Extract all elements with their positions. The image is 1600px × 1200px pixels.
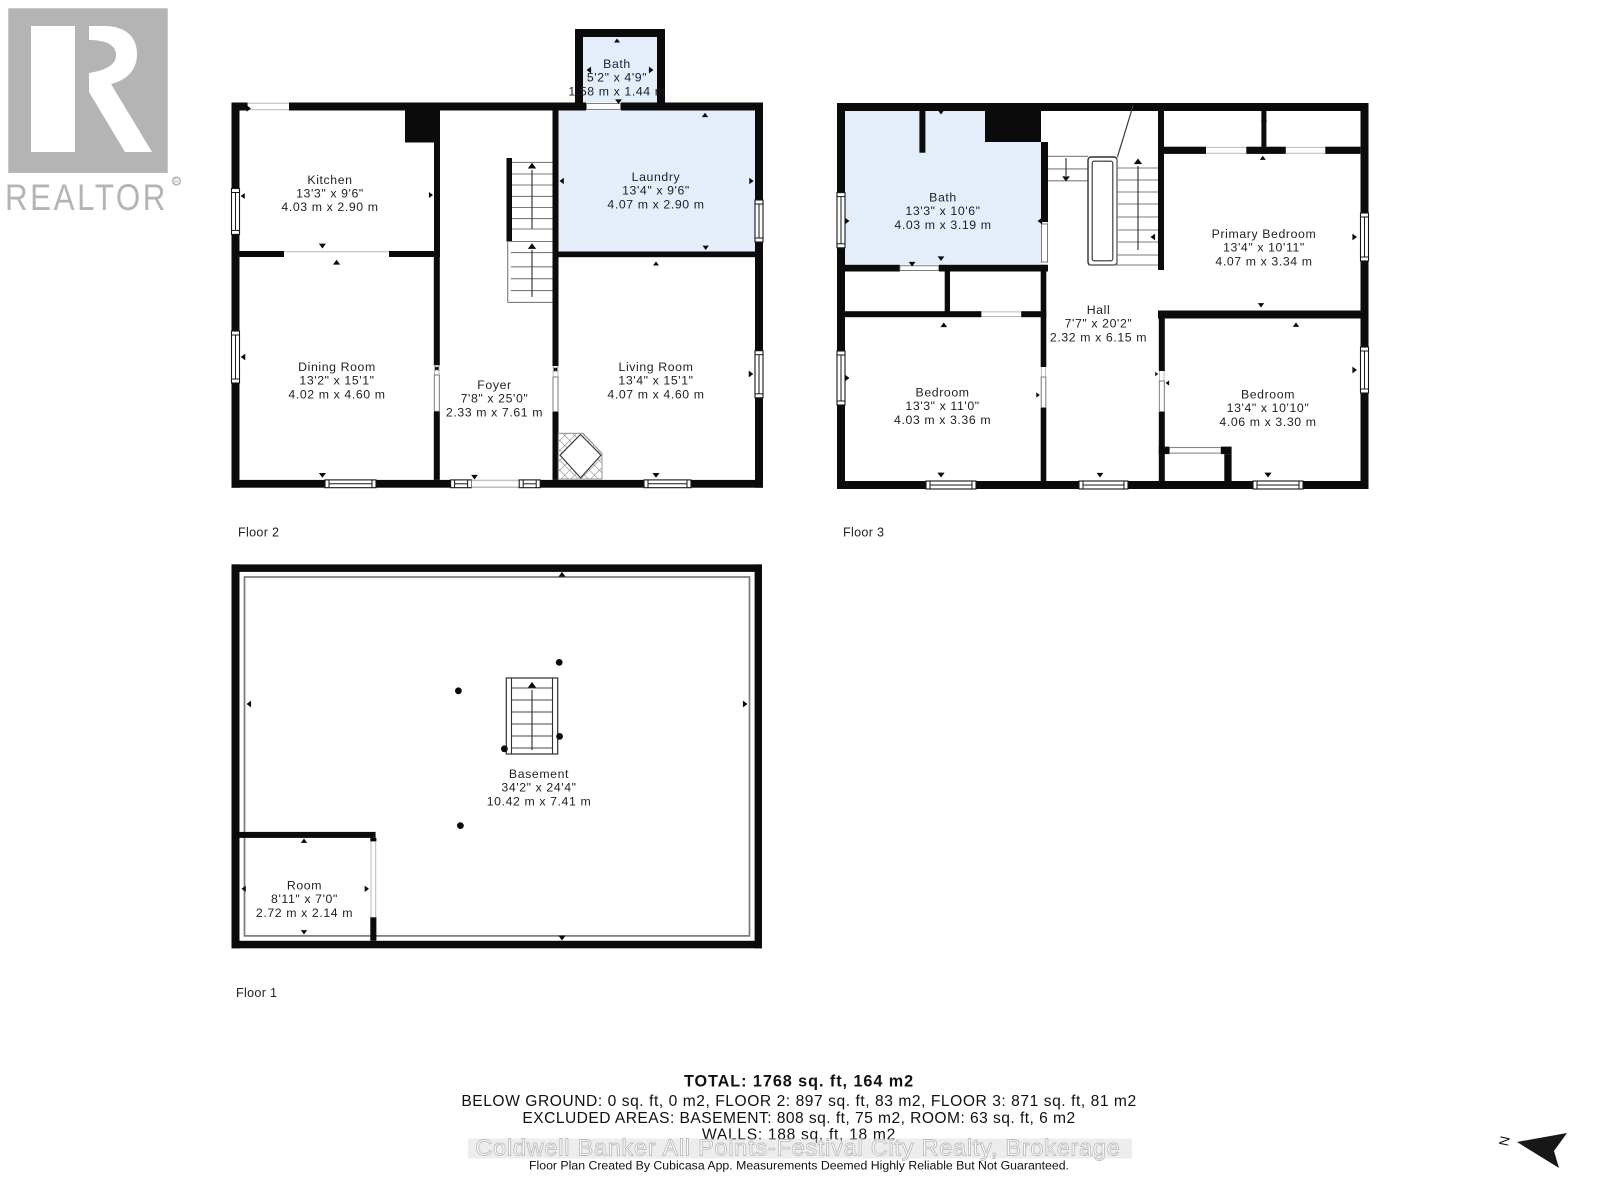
svg-text:13'3" x 11'0": 13'3" x 11'0" [905, 399, 979, 413]
svg-text:Room: Room [287, 879, 322, 893]
svg-text:13'4" x 10'11": 13'4" x 10'11" [1223, 241, 1305, 255]
svg-text:7'7" x 20'2": 7'7" x 20'2" [1065, 317, 1133, 331]
svg-text:R: R [174, 179, 179, 186]
svg-text:10.42 m x 7.41 m: 10.42 m x 7.41 m [487, 794, 592, 808]
svg-text:4.03 m x 2.90 m: 4.03 m x 2.90 m [281, 200, 378, 214]
svg-text:Hall: Hall [1087, 303, 1111, 317]
svg-text:2.72 m x 2.14 m: 2.72 m x 2.14 m [256, 906, 353, 920]
svg-text:Floor 1: Floor 1 [236, 986, 277, 1000]
svg-text:Floor Plan Created By Cubicasa: Floor Plan Created By Cubicasa App. Meas… [529, 1159, 1069, 1173]
svg-text:13'3" x 10'6": 13'3" x 10'6" [905, 204, 980, 218]
svg-text:BELOW GROUND: 0 sq. ft, 0 m2,: BELOW GROUND: 0 sq. ft, 0 m2, FLOOR 2: 8… [461, 1093, 1136, 1110]
svg-text:Floor 2: Floor 2 [238, 526, 279, 540]
svg-text:4.06 m x 3.30 m: 4.06 m x 3.30 m [1219, 415, 1316, 429]
svg-text:5'2" x 4'9": 5'2" x 4'9" [587, 71, 647, 85]
svg-text:4.07 m x 4.60 m: 4.07 m x 4.60 m [607, 387, 704, 401]
svg-text:13'2" x 15'1": 13'2" x 15'1" [299, 374, 374, 388]
svg-text:7'8" x 25'0": 7'8" x 25'0" [461, 392, 529, 406]
svg-text:4.03 m x 3.36 m: 4.03 m x 3.36 m [894, 413, 991, 427]
svg-text:REALTOR: REALTOR [5, 177, 168, 218]
svg-text:2.32 m x 6.15 m: 2.32 m x 6.15 m [1050, 330, 1147, 344]
svg-text:13'4" x 10'10": 13'4" x 10'10" [1227, 401, 1310, 415]
svg-text:Dining Room: Dining Room [298, 360, 376, 374]
svg-text:Bath: Bath [929, 191, 957, 205]
svg-text:Bath: Bath [603, 57, 631, 71]
svg-text:2.33 m x 7.61 m: 2.33 m x 7.61 m [446, 405, 543, 419]
svg-text:8'11" x 7'0": 8'11" x 7'0" [271, 892, 338, 906]
svg-text:EXCLUDED AREAS: BASEMENT: 808: EXCLUDED AREAS: BASEMENT: 808 sq. ft, 75… [522, 1110, 1075, 1127]
svg-text:N: N [1496, 1135, 1513, 1148]
svg-text:13'4" x 9'6": 13'4" x 9'6" [622, 184, 690, 198]
svg-text:13'3" x 9'6": 13'3" x 9'6" [296, 187, 364, 201]
svg-text:4.03 m x 3.19 m: 4.03 m x 3.19 m [894, 218, 991, 232]
svg-text:Basement: Basement [509, 767, 569, 781]
svg-text:TOTAL: 1768 sq. ft, 164 m2: TOTAL: 1768 sq. ft, 164 m2 [684, 1073, 914, 1091]
svg-text:13'4" x 15'1": 13'4" x 15'1" [618, 374, 693, 388]
svg-text:4.07 m x 2.90 m: 4.07 m x 2.90 m [607, 197, 704, 211]
svg-text:4.02 m x 4.60 m: 4.02 m x 4.60 m [288, 387, 385, 401]
svg-text:Laundry: Laundry [632, 170, 681, 184]
svg-text:Primary Bedroom: Primary Bedroom [1212, 227, 1317, 241]
svg-text:Foyer: Foyer [477, 378, 511, 392]
svg-text:Living Room: Living Room [619, 360, 694, 374]
svg-text:Bedroom: Bedroom [916, 386, 970, 400]
svg-text:34'2" x 24'4": 34'2" x 24'4" [501, 781, 576, 795]
svg-text:Kitchen: Kitchen [307, 173, 352, 187]
svg-text:4.07 m x 3.34 m: 4.07 m x 3.34 m [1215, 254, 1312, 268]
svg-text:1.58 m x 1.44 m: 1.58 m x 1.44 m [568, 84, 665, 98]
svg-text:Coldwell Banker All Points-Fes: Coldwell Banker All Points-Festival City… [475, 1135, 1120, 1161]
svg-text:Floor 3: Floor 3 [843, 526, 884, 540]
svg-text:Bedroom: Bedroom [1241, 388, 1295, 402]
